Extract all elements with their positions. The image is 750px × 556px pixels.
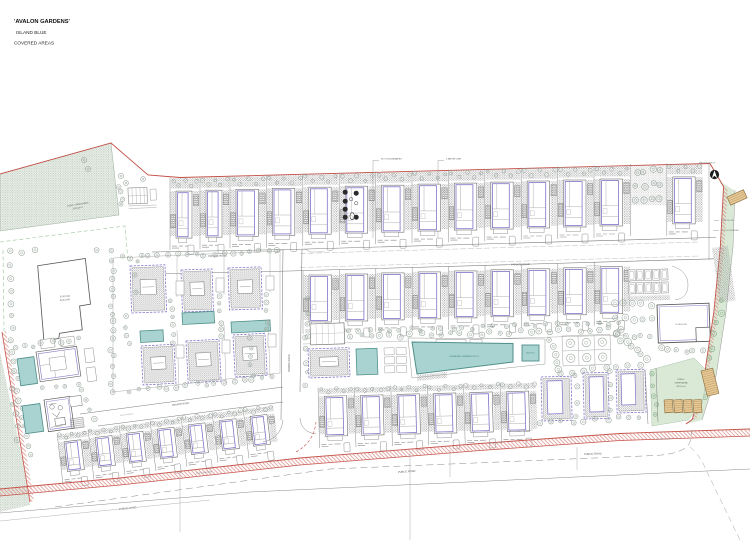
svg-text:COVERED AREAS: COVERED AREAS [14,41,54,46]
svg-text:GREEN AREA: GREEN AREA [674,382,688,385]
svg-text:CLUBHOUSE: CLUBHOUSE [675,324,688,326]
svg-text:MELISSOKIPOS: MELISSOKIPOS [699,163,716,165]
svg-text:PRIVATE ROAD: PRIVATE ROAD [511,262,530,266]
svg-text:3 METRE LINE: 3 METRE LINE [721,220,735,222]
svg-text:PLOT BOUNDARIES: PLOT BOUNDARIES [721,229,740,232]
svg-text:PLOT BOUNDARIES: PLOT BOUNDARIES [381,158,402,161]
svg-text:PUBLIC: PUBLIC [677,379,685,381]
svg-text:PUBLIC ROAD: PUBLIC ROAD [584,451,602,456]
svg-text:ISLAND BLUE: ISLAND BLUE [16,30,46,35]
svg-text:'AVALON GARDENS': 'AVALON GARDENS' [14,19,71,25]
svg-text:3 METRE LINE: 3 METRE LINE [446,159,461,161]
svg-text:467.10 m²: 467.10 m² [676,385,685,388]
svg-text:PRIVATE ROAD: PRIVATE ROAD [288,354,291,372]
svg-text:COMMUNAL SWIMMING POOL: COMMUNAL SWIMMING POOL [449,355,480,358]
svg-text:ΔΡ. ΚΑΣΟΥΛΙΔΗΣ: ΔΡ. ΚΑΣΟΥΛΙΔΗΣ [656,437,671,441]
svg-text:KIDS POOL: KIDS POOL [526,353,535,355]
